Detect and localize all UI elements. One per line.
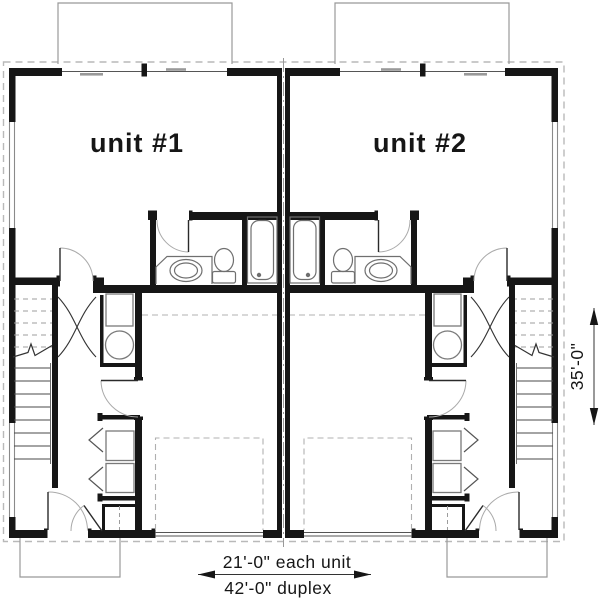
- duplex-width-label: 42'-0" duplex: [224, 578, 332, 598]
- floor-plan-canvas: unit #1 unit #2 21'-0" each unit 42'-0" …: [0, 0, 600, 600]
- unit2-label: unit #2: [373, 128, 467, 158]
- each-unit-width-label: 21'-0" each unit: [223, 552, 351, 572]
- unit1-label: unit #1: [90, 128, 184, 158]
- floor-plan: unit #1 unit #2 21'-0" each unit 42'-0" …: [0, 0, 600, 600]
- depth-label: 35'-0": [567, 343, 587, 391]
